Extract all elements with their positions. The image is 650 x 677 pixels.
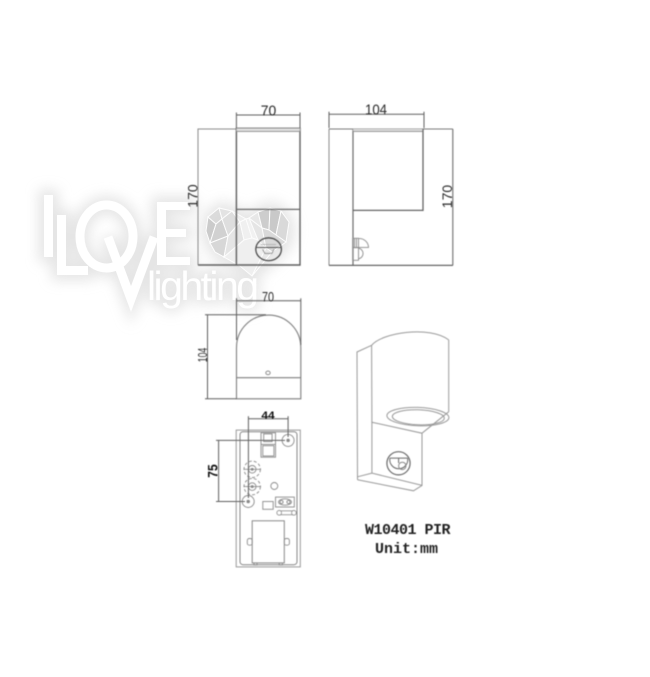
svg-text:70: 70 [261,103,277,120]
svg-text:lighting: lighting [147,263,259,309]
svg-text:44: 44 [261,410,274,422]
svg-text:104: 104 [195,348,210,363]
svg-text:170: 170 [439,185,455,209]
svg-text:W10401 PIR: W10401 PIR [365,522,451,539]
svg-text:Unit:mm: Unit:mm [375,541,438,558]
svg-text:170: 170 [185,184,201,208]
svg-text:70: 70 [262,289,274,305]
svg-text:75: 75 [204,464,220,478]
svg-text:104: 104 [365,102,387,119]
